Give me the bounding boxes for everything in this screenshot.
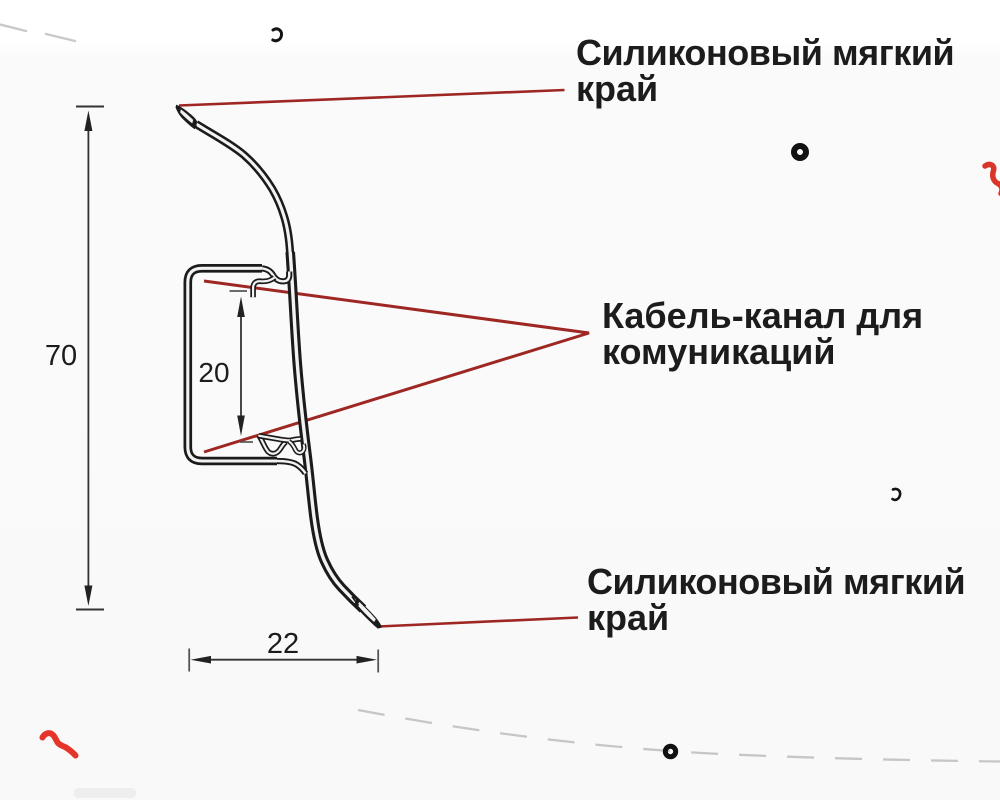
svg-text:Кабель-канал для: Кабель-канал для xyxy=(602,295,923,336)
svg-text:край: край xyxy=(587,597,669,638)
svg-text:22: 22 xyxy=(267,628,299,660)
svg-text:20: 20 xyxy=(198,357,229,388)
svg-text:Силиконовый мягкий: Силиконовый мягкий xyxy=(576,32,954,73)
svg-text:70: 70 xyxy=(45,340,77,372)
svg-text:комуникаций: комуникаций xyxy=(602,331,836,372)
svg-text:край: край xyxy=(576,68,658,109)
svg-text:Силиконовый мягкий: Силиконовый мягкий xyxy=(587,561,965,602)
